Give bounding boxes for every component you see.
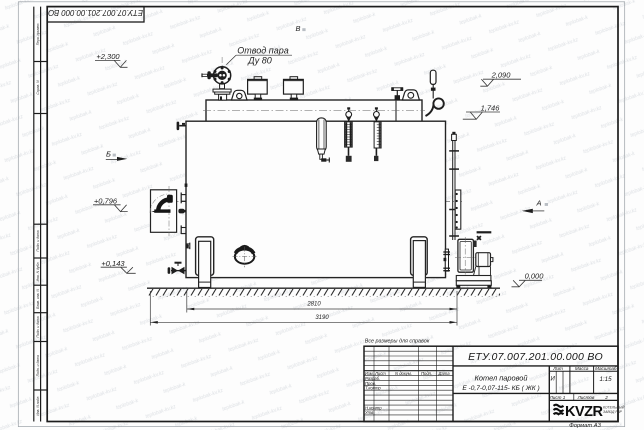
svg-text:KVZR: KVZR [565, 404, 604, 420]
svg-text:Б: Б [106, 150, 111, 159]
svg-text:КОТЕЛЬНЫЙ: КОТЕЛЬНЫЙ [603, 406, 625, 410]
svg-text:ЕТУ.07.007.201.00.000 ВО: ЕТУ.07.007.201.00.000 ВО [468, 351, 603, 363]
svg-text:2810: 2810 [306, 302, 321, 308]
svg-text:Подп. и дата: Подп. и дата [36, 316, 40, 337]
svg-text:+0,143: +0,143 [101, 259, 125, 268]
svg-text:Отвод пара: Отвод пара [237, 46, 288, 56]
svg-text:Утв.: Утв. [365, 410, 375, 415]
svg-text:Лит: Лит [552, 366, 563, 371]
svg-text:Листов: Листов [577, 395, 595, 400]
svg-text:0,000: 0,000 [525, 272, 545, 281]
svg-text:Е -0,7-0,07-115- КБ ( ЖК ): Е -0,7-0,07-115- КБ ( ЖК ) [462, 385, 539, 392]
svg-text:1,746: 1,746 [481, 103, 501, 112]
svg-text:И: И [551, 377, 556, 383]
svg-text:Котел паровой: Котел паровой [474, 374, 527, 383]
svg-text:Масса: Масса [575, 366, 589, 371]
svg-text:Подп. и дата: Подп. и дата [36, 230, 40, 251]
svg-text:Дата: Дата [438, 371, 451, 376]
svg-text:Лист 1: Лист 1 [549, 395, 566, 400]
svg-text:ЕТУ.07.007.201.00.000 ВО: ЕТУ.07.007.201.00.000 ВО [48, 8, 143, 17]
svg-text:1:15: 1:15 [599, 376, 612, 383]
svg-text:N докум.: N докум. [395, 371, 412, 376]
svg-text:ЗАВОД РЗР: ЗАВОД РЗР [603, 410, 623, 414]
svg-text:Справ. N: Справ. N [36, 80, 40, 95]
svg-text:Подп. и дата: Подп. и дата [36, 355, 40, 376]
svg-text:Все размеры для справок: Все размеры для справок [365, 338, 430, 344]
svg-text:Ду 80: Ду 80 [247, 56, 271, 66]
svg-text:Т.контр: Т.контр [365, 386, 381, 391]
svg-text:А: А [536, 198, 542, 207]
svg-text:В: В [296, 24, 301, 33]
svg-text:Взам. инв. N: Взам. инв. N [36, 289, 40, 309]
svg-text:Инв. N подл.: Инв. N подл. [36, 396, 40, 416]
svg-text:Масштаб: Масштаб [595, 366, 617, 371]
svg-text:Инв. N дубл.: Инв. N дубл. [36, 262, 40, 282]
svg-text:2,090: 2,090 [491, 71, 512, 80]
svg-text:Перв. примен.: Перв. примен. [36, 23, 40, 46]
svg-text:Подп.: Подп. [421, 371, 432, 376]
svg-text:+0,796: +0,796 [94, 196, 118, 205]
svg-text:Формат А3: Формат А3 [569, 423, 601, 429]
svg-text:+2,300: +2,300 [96, 52, 120, 61]
svg-text:2: 2 [604, 395, 608, 400]
svg-text:3190: 3190 [315, 315, 329, 321]
